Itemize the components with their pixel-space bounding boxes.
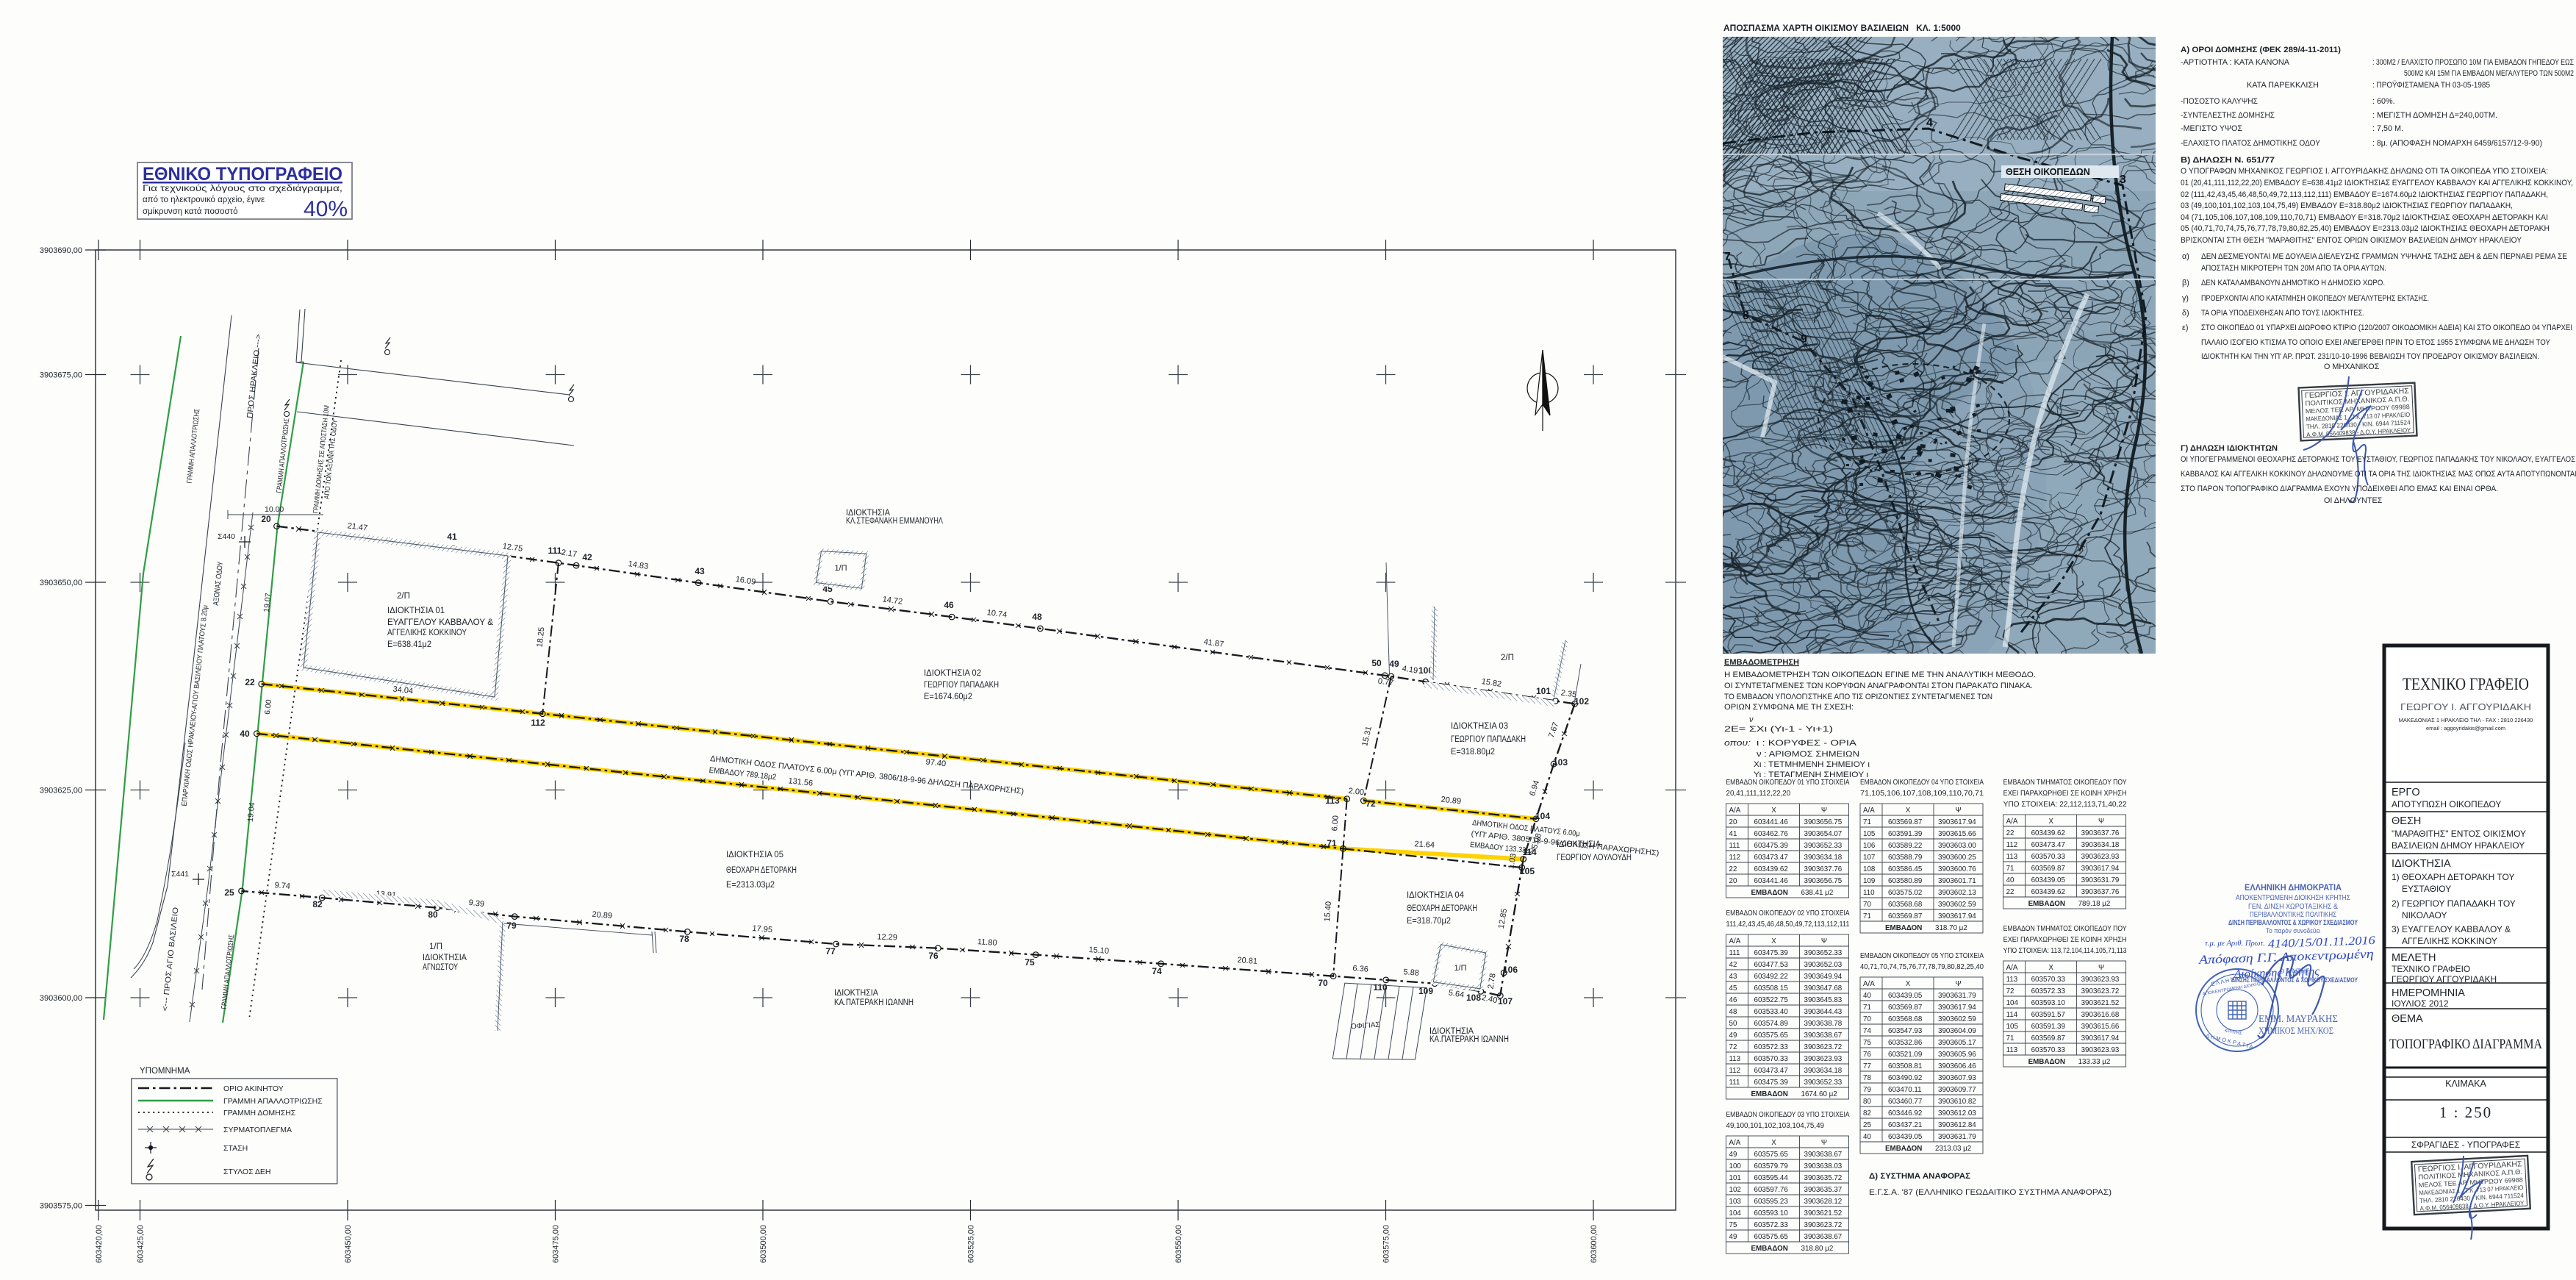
svg-text:ΟΙ ΥΠΟΓΕΓΡΑΜΜΕΝΟΙ ΘΕΟΧΑΡΗΣ ΔΕΤ: ΟΙ ΥΠΟΓΕΓΡΑΜΜΕΝΟΙ ΘΕΟΧΑΡΗΣ ΔΕΤΟΡΑΚΗΣ ΤΟΥ…: [2181, 455, 2575, 464]
svg-text:ΔΕΝ ΚΑΤΑΛΑΜΒΑΝΟΥΝ ΔΗΜΟΤΙΚΟ Η Δ: ΔΕΝ ΚΑΤΑΛΑΜΒΑΝΟΥΝ ΔΗΜΟΤΙΚΟ Η ΔΗΜΟΣΙΟ ΧΩΡ…: [2201, 279, 2385, 287]
svg-text:3903605.96: 3903605.96: [1938, 1051, 1976, 1059]
svg-text:15.10: 15.10: [1088, 945, 1109, 956]
svg-text:603475.39: 603475.39: [1754, 842, 1788, 850]
svg-text:3903638.67: 3903638.67: [1804, 1151, 1843, 1159]
svg-text:ΟΙ ΣΥΝΤΕΤΑΓΜΕΝΕΣ ΤΩΝ ΚΟΡΥΦΩΝ Α: ΟΙ ΣΥΝΤΕΤΑΓΜΕΝΕΣ ΤΩΝ ΚΟΡΥΦΩΝ ΑΝΑΓΡΑΦΟΝΤΑ…: [1724, 682, 2033, 690]
svg-text:Α/Α: Α/Α: [2006, 818, 2018, 826]
svg-text:2.00: 2.00: [1348, 787, 1365, 797]
svg-text:80: 80: [428, 909, 438, 920]
svg-text:3903612.84: 3903612.84: [1938, 1121, 1976, 1129]
svg-text:ΙΔΙΟΚΤΗΣΙΑ 02: ΙΔΙΟΚΤΗΣΙΑ 02: [924, 669, 981, 678]
svg-text:: 60%.: : 60%.: [2372, 97, 2395, 106]
svg-text:3903623.93: 3903623.93: [2081, 853, 2120, 861]
svg-text:6.00: 6.00: [263, 699, 273, 715]
svg-text:ι : ΚΟΡΥΦΕΣ - ΟΡΙΑ: ι : ΚΟΡΥΦΕΣ - ΟΡΙΑ: [1757, 739, 1857, 748]
svg-text:1/Π: 1/Π: [429, 943, 442, 951]
svg-text:603500,00: 603500,00: [759, 1225, 768, 1263]
svg-text:79: 79: [506, 920, 517, 931]
svg-text:77: 77: [1863, 1062, 1871, 1070]
svg-text:3903605.17: 3903605.17: [1938, 1039, 1976, 1047]
svg-text:: 300Μ2 / ΕΛΑΧΙΣΤΟ ΠΡΟΣΩΠΟ 10: : 300Μ2 / ΕΛΑΧΙΣΤΟ ΠΡΟΣΩΠΟ 10Μ ΓΙΑ ΕΜΒΑΔ…: [2372, 58, 2574, 67]
svg-text:42: 42: [582, 552, 592, 562]
svg-text:σμίκρυνση κατά ποσοστό: σμίκρυνση κατά ποσοστό: [143, 207, 237, 216]
svg-text:111: 111: [1729, 1079, 1740, 1087]
svg-text:ΘΕΣΗ ΟΙΚΟΠΕΔΩΝ: ΘΕΣΗ ΟΙΚΟΠΕΔΩΝ: [2006, 167, 2090, 177]
svg-text:ΔΙΝΣΗΣ ΠΕΡΙΒΑΛΛΟΝΤΟΣ & ΧΩΡΙΚΟΥ: ΔΙΝΣΗΣ ΠΕΡΙΒΑΛΛΟΝΤΟΣ & ΧΩΡΙΚΟΥ ΣΧΕΔΙΑΣΜΟ…: [2231, 976, 2358, 984]
svg-text:4: 4: [1926, 117, 1933, 129]
svg-text:25: 25: [1863, 1121, 1871, 1129]
svg-text:49: 49: [1729, 1151, 1737, 1159]
svg-text:71: 71: [1327, 838, 1337, 848]
svg-text:ΕΛΛΗΝΙΚΗ ΔΗΜΟΚΡΑΤΙΑ: ΕΛΛΗΝΙΚΗ ΔΗΜΟΚΡΑΤΙΑ: [2245, 882, 2342, 893]
svg-text:49: 49: [1729, 1031, 1737, 1040]
svg-text:71: 71: [2006, 1034, 2014, 1043]
svg-text:603568.68: 603568.68: [1888, 1015, 1923, 1023]
svg-text:74: 74: [1863, 1027, 1871, 1035]
svg-text:03 (49,100,101,102,103,104,75: 03 (49,100,101,102,103,104,75,49) ΕΜΒΑΔΟ…: [2181, 201, 2513, 210]
svg-text:ΕΧΕΙ ΠΑΡΑΧΩΡΗΘΕΙ ΣΕ ΚΟΙΝΗ ΧΡΗΣ: ΕΧΕΙ ΠΑΡΑΧΩΡΗΘΕΙ ΣΕ ΚΟΙΝΗ ΧΡΗΣΗ: [2003, 936, 2127, 944]
svg-text:45: 45: [1729, 984, 1737, 993]
svg-text:ΚΑΤΑ ΠΑΡΕΚΚΛΙΣΗ: ΚΑΤΑ ΠΑΡΕΚΚΛΙΣΗ: [2247, 81, 2319, 90]
svg-text:ΕΜΒΑΔΟΝ: ΕΜΒΑΔΟΝ: [1751, 889, 1788, 897]
svg-text:3903623.72: 3903623.72: [1804, 1221, 1843, 1229]
svg-text:112: 112: [2006, 841, 2018, 849]
svg-text:ΕΜΒΑΔΟΜΕΤΡΗΣΗ: ΕΜΒΑΔΟΜΕΤΡΗΣΗ: [1724, 658, 1799, 667]
svg-text:46: 46: [944, 600, 954, 610]
svg-text:Ψ: Ψ: [1955, 807, 1961, 815]
svg-text:20.81: 20.81: [1237, 956, 1257, 966]
svg-text:603460.77: 603460.77: [1888, 1098, 1922, 1106]
svg-text:7: 7: [1724, 251, 1731, 263]
svg-text:Ψ: Ψ: [2098, 818, 2104, 826]
svg-text:04 (71,105,106,107,108,109,11: 04 (71,105,106,107,108,109,110,70,71) ΕΜ…: [2181, 213, 2548, 222]
svg-text:Α/Α: Α/Α: [1863, 980, 1875, 988]
svg-text:70: 70: [1863, 1015, 1871, 1023]
svg-text:1/Π: 1/Π: [834, 564, 847, 573]
svg-text:107: 107: [1498, 996, 1513, 1007]
svg-text:15.40: 15.40: [1323, 901, 1333, 922]
svg-text:2313.03 μ2: 2313.03 μ2: [1935, 1145, 1971, 1153]
svg-text:ΠΕΡΙΒΑΛΛΟΝΤΙΚΗΣ ΠΟΛΙΤΙΚΗΣ: ΠΕΡΙΒΑΛΛΟΝΤΙΚΗΣ ΠΟΛΙΤΙΚΗΣ: [2250, 911, 2336, 919]
svg-text:112: 112: [1729, 854, 1741, 862]
svg-text:Χι : ΤΕΤΜΗΜΕΝΗ ΣΗΜΕΙΟΥ ι: Χι : ΤΕΤΜΗΜΕΝΗ ΣΗΜΕΙΟΥ ι: [1754, 760, 1870, 769]
svg-text:603569.87: 603569.87: [1888, 912, 1922, 920]
svg-text:Ε=318.70μ2: Ε=318.70μ2: [1407, 917, 1451, 926]
svg-text:ΙΔΙΟΚΤΗΣΙΑ 04: ΙΔΙΟΚΤΗΣΙΑ 04: [1407, 891, 1465, 900]
svg-text:ΟΡΙΟ ΑΚΙΝΗΤΟΥ: ΟΡΙΟ ΑΚΙΝΗΤΟΥ: [223, 1084, 284, 1093]
svg-text:603569.87: 603569.87: [2031, 865, 2065, 873]
svg-text:ΑΠΟΤΥΠΩΣΗ ΟΙΚΟΠΕΔΟΥ: ΑΠΟΤΥΠΩΣΗ ΟΙΚΟΠΕΔΟΥ: [2392, 799, 2501, 809]
svg-text:Ε=638.41μ2: Ε=638.41μ2: [387, 640, 431, 649]
svg-text:ΙΔΙΟΚΤΗΣΙΑ 01: ΙΔΙΟΚΤΗΣΙΑ 01: [387, 607, 445, 615]
svg-text:113: 113: [2006, 976, 2018, 984]
svg-text:603547.93: 603547.93: [1888, 1027, 1923, 1035]
svg-text:ΕΜΒΑΔΟΝ ΟΙΚΟΠΕΔΟΥ 05 ΥΠΟ ΣΤΟΙΧ: ΕΜΒΑΔΟΝ ΟΙΚΟΠΕΔΟΥ 05 ΥΠΟ ΣΤΟΙΧΕΙΑ: [1860, 952, 1984, 960]
svg-text:75: 75: [1025, 957, 1035, 968]
svg-text:: 8μ. (ΑΠΟΦΑΣΗ ΝΟΜΑΡΧΗ 6459/6: : 8μ. (ΑΠΟΦΑΣΗ ΝΟΜΑΡΧΗ 6459/6157/12-9-90…: [2372, 139, 2542, 148]
svg-text:74: 74: [1152, 966, 1162, 976]
svg-text:3903638.78: 3903638.78: [1804, 1020, 1843, 1028]
svg-text:ΠΑΛΑΙΟ ΙΣΟΓΕΙΟ ΚΤΙΣΜΑ ΤΟ ΟΠΟΙΟ: ΠΑΛΑΙΟ ΙΣΟΓΕΙΟ ΚΤΙΣΜΑ ΤΟ ΟΠΟΙΟ ΕΧΕΙ ΑΝΕΓ…: [2201, 338, 2550, 347]
svg-text:603475.39: 603475.39: [1754, 1079, 1788, 1087]
svg-text:43: 43: [695, 566, 705, 576]
svg-text:46: 46: [1729, 996, 1737, 1004]
svg-text:3903634.18: 3903634.18: [2081, 841, 2120, 849]
svg-text:603595.44: 603595.44: [1754, 1174, 1789, 1182]
svg-text:ΑΓΝΩΣΤΟΥ: ΑΓΝΩΣΤΟΥ: [423, 963, 458, 972]
svg-text:3903635.37: 3903635.37: [1804, 1186, 1843, 1194]
svg-text:638.41 μ2: 638.41 μ2: [1801, 889, 1834, 897]
svg-text:105: 105: [1863, 830, 1876, 838]
svg-text:Ψ: Ψ: [1821, 937, 1827, 945]
svg-text:6.00: 6.00: [1330, 815, 1341, 832]
svg-text:ΕΜΒΑΔΟΝ: ΕΜΒΑΔΟΝ: [1885, 1145, 1922, 1153]
svg-text:Χ: Χ: [1771, 1139, 1776, 1147]
svg-text:603439.05: 603439.05: [1888, 992, 1923, 1000]
svg-text:603591.39: 603591.39: [2031, 1023, 2065, 1031]
svg-text:318.70 μ2: 318.70 μ2: [1935, 924, 1967, 932]
svg-text:Β) ΔΗΛΩΣΗ Ν. 651/77: Β) ΔΗΛΩΣΗ Ν. 651/77: [2181, 156, 2275, 165]
svg-text:3903690,00: 3903690,00: [40, 246, 82, 255]
svg-text:3903623.93: 3903623.93: [2081, 1046, 2120, 1054]
svg-text:3903603.00: 3903603.00: [1938, 842, 1976, 850]
svg-text:603521.09: 603521.09: [1888, 1051, 1922, 1059]
svg-text:Ψ: Ψ: [1821, 807, 1827, 815]
svg-text:3) ΕΥΑΓΓΕΛΟΥ ΚΑΒΒΑΛΟΥ &: 3) ΕΥΑΓΓΕΛΟΥ ΚΑΒΒΑΛΟΥ &: [2392, 924, 2511, 934]
svg-text:Α/Α: Α/Α: [1729, 1139, 1741, 1147]
svg-text:Α/Α: Α/Α: [1729, 937, 1741, 945]
svg-text:113: 113: [1325, 795, 1340, 806]
svg-text:603441.46: 603441.46: [1754, 818, 1789, 826]
svg-text:3903615.66: 3903615.66: [1938, 830, 1976, 838]
svg-text:106: 106: [1863, 842, 1876, 850]
svg-text:71: 71: [1863, 1004, 1871, 1012]
svg-text:603575.65: 603575.65: [1754, 1233, 1789, 1241]
svg-text:114: 114: [2006, 1011, 2018, 1019]
svg-text:603575.65: 603575.65: [1754, 1031, 1789, 1040]
svg-text:3903652.33: 3903652.33: [1804, 842, 1843, 850]
svg-text:603550,00: 603550,00: [1174, 1225, 1183, 1263]
svg-text:5.88: 5.88: [1403, 968, 1419, 978]
svg-text:603508.81: 603508.81: [1888, 1062, 1922, 1070]
svg-text:ΓΡΑΜΜΗ ΔΟΜΗΣΗΣ: ΓΡΑΜΜΗ ΔΟΜΗΣΗΣ: [223, 1109, 296, 1118]
svg-text:603579.79: 603579.79: [1754, 1162, 1788, 1170]
svg-text:111: 111: [1729, 949, 1740, 957]
svg-text:Χ: Χ: [2048, 964, 2053, 972]
svg-text:02 (111,42,43,45,46,48,50,49,: 02 (111,42,43,45,46,48,50,49,72,113,112,…: [2181, 190, 2548, 199]
svg-text:3903634.18: 3903634.18: [1804, 854, 1843, 862]
svg-text:112: 112: [1729, 1067, 1741, 1075]
svg-text:3903621.52: 3903621.52: [1804, 1209, 1843, 1218]
svg-text:Ε=318.80μ2: Ε=318.80μ2: [1451, 748, 1495, 757]
svg-text:ΕΜΒΑΔΟΝ ΟΙΚΟΠΕΔΟΥ 04 ΥΠΟ ΣΤΟΙΧ: ΕΜΒΑΔΟΝ ΟΙΚΟΠΕΔΟΥ 04 ΥΠΟ ΣΤΟΙΧΕΙΑ: [1860, 779, 1984, 787]
svg-text:20: 20: [1729, 818, 1737, 826]
svg-text:ΕΡΓΟ: ΕΡΓΟ: [2392, 787, 2420, 798]
svg-text:108: 108: [1863, 865, 1876, 873]
svg-text:603575.02: 603575.02: [1888, 889, 1922, 897]
svg-text:103: 103: [1729, 1198, 1742, 1206]
svg-text:Χ: Χ: [1906, 807, 1911, 815]
svg-text:Α/Α: Α/Α: [1863, 807, 1875, 815]
svg-text:48: 48: [1729, 1008, 1737, 1016]
svg-text:ΝΙΚΟΛΑΟΥ: ΝΙΚΟΛΑΟΥ: [2402, 910, 2447, 920]
svg-text:Α/Α: Α/Α: [2006, 964, 2018, 972]
svg-text:τ.μ. με Αριθ. Πρωτ.: τ.μ. με Αριθ. Πρωτ.: [2205, 940, 2265, 948]
svg-text:ΣΤΑΣΗ: ΣΤΑΣΗ: [223, 1144, 248, 1153]
svg-text:ε): ε): [2182, 323, 2188, 332]
svg-text:3903600,00: 3903600,00: [40, 994, 82, 1003]
svg-text:3903656.75: 3903656.75: [1804, 818, 1843, 826]
svg-text:3903637.76: 3903637.76: [2081, 829, 2120, 837]
svg-text:ΓΕΩΡΓΙΟΥ ΠΑΠΑΔΑΚΗ: ΓΕΩΡΓΙΟΥ ΠΑΠΑΔΑΚΗ: [1451, 735, 1526, 744]
svg-text:3903652.33: 3903652.33: [1804, 1079, 1843, 1087]
svg-text:2) ΓΕΩΡΓΙΟΥ ΠΑΠΑΔΑΚΗ ΤΟΥ: 2) ΓΕΩΡΓΙΟΥ ΠΑΠΑΔΑΚΗ ΤΟΥ: [2392, 898, 2516, 909]
svg-text:603575,00: 603575,00: [1382, 1225, 1391, 1263]
svg-text:2/Π: 2/Π: [397, 592, 410, 601]
svg-text:ΙΟΥΛΙΟΣ 2012: ΙΟΥΛΙΟΣ 2012: [2392, 998, 2449, 1009]
svg-text:100: 100: [1729, 1162, 1742, 1170]
svg-text:40: 40: [240, 729, 250, 739]
svg-text:-ΕΛΑΧΙΣΤΟ ΠΛΑΤΟΣ ΔΗΜΟΤΙΚΗΣ ΟΔΟ: -ΕΛΑΧΙΣΤΟ ΠΛΑΤΟΣ ΔΗΜΟΤΙΚΗΣ ΟΔΟΥ: [2181, 139, 2320, 148]
svg-text:ΘΕΟΧΑΡΗ ΔΕΤΟΡΑΚΗ: ΘΕΟΧΑΡΗ ΔΕΤΟΡΑΚΗ: [726, 866, 797, 875]
svg-text:108: 108: [1466, 993, 1481, 1003]
svg-text:3903628.12: 3903628.12: [1804, 1198, 1843, 1206]
svg-text:1674.60 μ2: 1674.60 μ2: [1801, 1090, 1837, 1098]
svg-text:3903635.72: 3903635.72: [1804, 1174, 1843, 1182]
svg-text:1) ΘΕΟΧΑΡΗ ΔΕΤΟΡΑΚΗ ΤΟΥ: 1) ΘΕΟΧΑΡΗ ΔΕΤΟΡΑΚΗ ΤΟΥ: [2392, 872, 2514, 882]
svg-text:603575.65: 603575.65: [1754, 1151, 1789, 1159]
svg-text:ΙΔΙΟΚΤΗΣΙΑ: ΙΔΙΟΚΤΗΣΙΑ: [834, 989, 878, 998]
svg-text:603591.39: 603591.39: [1888, 830, 1922, 838]
svg-text:-ΑΡΤΙΟΤΗΤΑ : ΚΑΤΑ ΚΑΝΟΝΑ: -ΑΡΤΙΟΤΗΤΑ : ΚΑΤΑ ΚΑΝΟΝΑ: [2181, 58, 2290, 67]
svg-text:Ε.Γ.Σ.Α. '87 (ΕΛΛΗΝΙΚΟ ΓΕΩΔΑΙ: Ε.Γ.Σ.Α. '87 (ΕΛΛΗΝΙΚΟ ΓΕΩΔΑΙΤΙΚΟ ΣΥΣΤΗΜ…: [1869, 1188, 2112, 1197]
svg-text:603439.05: 603439.05: [2031, 876, 2066, 884]
svg-text:ΕΜΒΑΔΟΝ: ΕΜΒΑΔΟΝ: [2028, 1058, 2065, 1066]
svg-text:3903623.72: 3903623.72: [2081, 987, 2120, 995]
svg-text:603439.62: 603439.62: [1754, 865, 1788, 873]
svg-text:107: 107: [1863, 854, 1875, 862]
svg-text:: 7,50 Μ.: : 7,50 Μ.: [2372, 124, 2403, 133]
svg-text:2Ε= ΣΧι (Υι-1 - Υι+1): 2Ε= ΣΧι (Υι-1 - Υι+1): [1724, 725, 1833, 734]
svg-text:Χ: Χ: [2048, 818, 2053, 826]
svg-text:133.33 μ2: 133.33 μ2: [2078, 1058, 2111, 1066]
svg-text:ΕΜΒΑΔΟΝ: ΕΜΒΑΔΟΝ: [1751, 1090, 1788, 1098]
svg-text:603597.76: 603597.76: [1754, 1186, 1789, 1194]
svg-text:3903654.07: 3903654.07: [1804, 830, 1843, 838]
svg-text:603574.89: 603574.89: [1754, 1020, 1788, 1028]
svg-text:ΓΡΑΜΜΗ ΑΠΑΛΛΟΤΡΙΩΣΗΣ: ΓΡΑΜΜΗ ΑΠΑΛΛΟΤΡΙΩΣΗΣ: [223, 1097, 323, 1106]
svg-text:ΓΕΩΡΓΙΟΥ ΛΟΥΛΟΥΔΗ: ΓΕΩΡΓΙΟΥ ΛΟΥΛΟΥΔΗ: [1557, 854, 1632, 862]
svg-text:Ο ΥΠΟΓΡΑΦΩΝ ΜΗΧΑΝΙΚΟΣ ΓΕΩΡΓΙΟΣ: Ο ΥΠΟΓΡΑΦΩΝ ΜΗΧΑΝΙΚΟΣ ΓΕΩΡΓΙΟΣ Ι. ΑΓΓΟΥΡ…: [2181, 167, 2548, 176]
svg-text:ΑΠΟΚΕΝΤΡΩΜΕΝΗ ΔΙΟΙΚΗΣΗ ΚΡΗΤΗΣ: ΑΠΟΚΕΝΤΡΩΜΕΝΗ ΔΙΟΙΚΗΣΗ ΚΡΗΤΗΣ: [2236, 894, 2350, 902]
svg-text:Γ) ΔΗΛΩΣΗ ΙΔΙΟΚΤΗΤΩΝ: Γ) ΔΗΛΩΣΗ ΙΔΙΟΚΤΗΤΩΝ: [2181, 444, 2278, 453]
svg-text:103: 103: [1553, 757, 1568, 768]
svg-text:ΜΑΚΕΔΟΝΙΑΣ 1 ΗΡΑΚΛΕΙΟ ΤΗΛ -: ΜΑΚΕΔΟΝΙΑΣ 1 ΗΡΑΚΛΕΙΟ ΤΗΛ - FAX : 2810 2…: [2399, 717, 2533, 723]
svg-text:82: 82: [312, 899, 323, 909]
svg-text:ΤΕΧΝΙΚΟ ΓΡΑΦΕΙΟ: ΤΕΧΝΙΚΟ ΓΡΑΦΕΙΟ: [2403, 675, 2529, 693]
svg-text:603570.33: 603570.33: [2031, 1046, 2066, 1054]
svg-text:603570.33: 603570.33: [1754, 1055, 1789, 1063]
svg-text:42: 42: [1729, 961, 1737, 969]
svg-text:22: 22: [2006, 829, 2014, 837]
svg-text:603593.10: 603593.10: [1754, 1209, 1789, 1218]
svg-text:43: 43: [1729, 973, 1737, 981]
svg-text:ΚΑ.ΠΑΤΕΡΑΚΗ ΙΩΑΝΝΗ: ΚΑ.ΠΑΤΕΡΑΚΗ ΙΩΑΝΝΗ: [1429, 1035, 1509, 1044]
svg-text:3903612.03: 3903612.03: [1938, 1109, 1976, 1118]
svg-text:112: 112: [531, 718, 545, 728]
svg-text:603525,00: 603525,00: [967, 1225, 976, 1263]
svg-text:79: 79: [1863, 1086, 1871, 1094]
svg-text:603593.10: 603593.10: [2031, 999, 2066, 1007]
svg-text:101: 101: [1536, 686, 1551, 696]
svg-text:71,105,106,107,108,109,110,70,: 71,105,106,107,108,109,110,70,71: [1860, 790, 1984, 798]
svg-text:500Μ2 ΚΑΙ 15Μ ΓΙΑ ΕΜΒΑΔΟΝ ΜΕΓΑ: 500Μ2 ΚΑΙ 15Μ ΓΙΑ ΕΜΒΑΔΟΝ ΜΕΓΑΛΥΤΕΡΟ ΤΩΝ…: [2404, 69, 2574, 78]
svg-text:ΓΕΩΡΓΙΟΥ ΑΓΓΟΥΡΙΔΑΚΗ: ΓΕΩΡΓΙΟΥ ΑΓΓΟΥΡΙΔΑΚΗ: [2392, 974, 2497, 984]
svg-text:ΠΡΟΕΡΧΟΝΤΑΙ ΑΠΟ ΚΑΤΑΤΜΗΣΗ ΟΙΚΟ: ΠΡΟΕΡΧΟΝΤΑΙ ΑΠΟ ΚΑΤΑΤΜΗΣΗ ΟΙΚΟΠΕΔΟΥ ΜΕΓΑ…: [2201, 294, 2429, 303]
svg-text:3: 3: [2120, 174, 2126, 186]
svg-text:603533.40: 603533.40: [1754, 1008, 1789, 1016]
svg-text:ΚΑΒΒΑΛΟΣ ΚΑΙ ΑΓΓΕΛΙΚΗ ΚΟΚΚΙΝΟΥ: ΚΑΒΒΑΛΟΣ ΚΑΙ ΑΓΓΕΛΙΚΗ ΚΟΚΚΙΝΟΥ ΔΗΛΩΝΟΥΜΕ…: [2181, 470, 2576, 479]
svg-text:102: 102: [1729, 1186, 1741, 1194]
svg-text:ΑΠΟΣΠΑΣΜΑ ΧΑΡΤΗ ΟΙΚΙΣΜΟΥ ΒΑΣΙΛ: ΑΠΟΣΠΑΣΜΑ ΧΑΡΤΗ ΟΙΚΙΣΜΟΥ ΒΑΣΙΛΕΙΩΝ ΚΛ. 1…: [1723, 23, 1961, 33]
svg-text:49: 49: [1389, 659, 1399, 669]
svg-text:77: 77: [825, 946, 836, 957]
svg-text:ΙΔΙΟΚΤΗΣΙΑ: ΙΔΙΟΚΤΗΣΙΑ: [423, 954, 467, 962]
svg-text:603572.33: 603572.33: [1754, 1043, 1789, 1051]
svg-text:ΕΧΕΙ ΠΑΡΑΧΩΡΗΘΕΙ ΣΕ ΚΟΙΝΗ ΧΡΗΣ: ΕΧΕΙ ΠΑΡΑΧΩΡΗΘΕΙ ΣΕ ΚΟΙΝΗ ΧΡΗΣΗ: [2003, 790, 2127, 798]
svg-text:603492.22: 603492.22: [1754, 973, 1788, 981]
svg-text:21.64: 21.64: [1414, 840, 1435, 850]
svg-text:76: 76: [928, 951, 939, 961]
svg-text:603591.57: 603591.57: [2031, 1011, 2065, 1019]
svg-text:3903621.52: 3903621.52: [2081, 999, 2120, 1007]
svg-text:05 (40,71,70,74,75,76,77,78,7: 05 (40,71,70,74,75,76,77,78,79,80,82,25,…: [2181, 224, 2550, 233]
svg-text:75: 75: [1863, 1039, 1871, 1047]
svg-text:ν : ΑΡΙΘΜΟΣ ΣΗΜΕΙΩΝ: ν : ΑΡΙΘΜΟΣ ΣΗΜΕΙΩΝ: [1757, 750, 1859, 759]
svg-text:3903617.94: 3903617.94: [1938, 818, 1976, 826]
svg-text:102: 102: [1574, 696, 1589, 707]
svg-text:104: 104: [2006, 999, 2019, 1007]
svg-text:3903623.93: 3903623.93: [2081, 976, 2120, 984]
svg-text:603589.22: 603589.22: [1888, 842, 1922, 850]
svg-text:789.18 μ2: 789.18 μ2: [2078, 900, 2111, 908]
svg-text:22: 22: [2006, 888, 2014, 896]
svg-text:603450,00: 603450,00: [344, 1225, 353, 1263]
svg-text:Η ΕΜΒΑΔΟΜΕΤΡΗΣΗ ΤΩΝ ΟΙΚΟΠΕΔΩΝ: Η ΕΜΒΑΔΟΜΕΤΡΗΣΗ ΤΩΝ ΟΙΚΟΠΕΔΩΝ ΕΓΙΝΕ ΜΕ Τ…: [1724, 671, 2036, 679]
svg-text:3903607.93: 3903607.93: [1938, 1074, 1976, 1082]
svg-text:3903606.46: 3903606.46: [1938, 1062, 1976, 1070]
svg-text:ΚΛΙΜΑΚΑ: ΚΛΙΜΑΚΑ: [2445, 1079, 2486, 1089]
svg-text:α): α): [2182, 252, 2189, 261]
svg-text:3903602.59: 3903602.59: [1938, 901, 1976, 909]
svg-text:41: 41: [447, 532, 457, 542]
svg-text:603470.11: 603470.11: [1888, 1086, 1922, 1094]
svg-text:ΕΜΒΑΔΟΝ ΟΙΚΟΠΕΔΟΥ 02 ΥΠΟ ΣΤΟΙΧ: ΕΜΒΑΔΟΝ ΟΙΚΟΠΕΔΟΥ 02 ΥΠΟ ΣΤΟΙΧΕΙΑ: [1726, 909, 1850, 918]
svg-text:3903617.94: 3903617.94: [2081, 1034, 2120, 1043]
svg-text:3903649.94: 3903649.94: [1804, 973, 1843, 981]
svg-text:ΤΕΧΝΙΚΟ ΓΡΑΦΕΙΟ: ΤΕΧΝΙΚΟ ΓΡΑΦΕΙΟ: [2392, 964, 2470, 974]
svg-text:1 : 250: 1 : 250: [2439, 1104, 2492, 1121]
svg-text:603569.87: 603569.87: [1888, 818, 1922, 826]
svg-text:ΣΤΟ ΟΙΚΟΠΕΔΟ 01 ΥΠΑΡΧΕΙ ΔΙΩΡΟΦ: ΣΤΟ ΟΙΚΟΠΕΔΟ 01 ΥΠΑΡΧΕΙ ΔΙΩΡΟΦΟ ΚΤΙΡΙΟ (…: [2201, 323, 2572, 332]
svg-text:ΘΕΜΑ: ΘΕΜΑ: [2392, 1013, 2423, 1025]
svg-text:72: 72: [2006, 987, 2014, 995]
svg-text:ΥΠΟ ΣΤΟΙΧΕΙΑ: 22,112,113,71,40: ΥΠΟ ΣΤΟΙΧΕΙΑ: 22,112,113,71,40,22: [2003, 801, 2127, 809]
svg-text:603420,00: 603420,00: [95, 1225, 104, 1263]
svg-text:Ε=1674.60μ2: Ε=1674.60μ2: [924, 693, 972, 701]
svg-text:318.80 μ2: 318.80 μ2: [1801, 1245, 1834, 1253]
svg-text:2/Π: 2/Π: [1501, 654, 1514, 662]
svg-text:ΕΥΑΓΓΕΛΟΥ ΚΑΒΒΑΛΟΥ &: ΕΥΑΓΓΕΛΟΥ ΚΑΒΒΑΛΟΥ &: [387, 618, 493, 627]
svg-text:76: 76: [1863, 1051, 1871, 1059]
svg-text:"ΜΑΡΑΘΙΤΗΣ" ΕΝΤΟΣ ΟΙΚΙΣΜΟΥ: "ΜΑΡΑΘΙΤΗΣ" ΕΝΤΟΣ ΟΙΚΙΣΜΟΥ: [2392, 829, 2526, 839]
svg-text:-ΜΕΓΙΣΤΟ ΥΨΟΣ: -ΜΕΓΙΣΤΟ ΥΨΟΣ: [2181, 124, 2242, 133]
svg-text:3903631.79: 3903631.79: [1938, 992, 1976, 1000]
svg-text:80: 80: [1863, 1098, 1871, 1106]
svg-text:ΕΜΒΑΔΟΝ: ΕΜΒΑΔΟΝ: [1885, 924, 1922, 932]
svg-text:Το παρόν συνοδεύει: Το παρόν συνοδεύει: [2266, 927, 2320, 934]
svg-text:603477.53: 603477.53: [1754, 961, 1789, 969]
svg-text:3903601.71: 3903601.71: [1938, 877, 1976, 885]
svg-text:603475.39: 603475.39: [1754, 949, 1788, 957]
svg-text:603437.21: 603437.21: [1888, 1121, 1922, 1129]
svg-text:ΑΠΟΣΤΑΣΗ ΜΙΚΡΟΤΕΡΗ ΤΩΝ 20Μ ΑΠΟ: ΑΠΟΣΤΑΣΗ ΜΙΚΡΟΤΕΡΗ ΤΩΝ 20Μ ΑΠΟ ΤΑ ΟΡΙΑ Α…: [2201, 264, 2386, 273]
svg-text:3903623.93: 3903623.93: [1804, 1055, 1843, 1063]
svg-text:: ΠΡΟΫΦΙΣΤΑΜΕΝΑ ΤΗ 03-05-1985: : ΠΡΟΫΦΙΣΤΑΜΕΝΑ ΤΗ 03-05-1985: [2372, 81, 2490, 90]
svg-text:603490.92: 603490.92: [1888, 1074, 1922, 1082]
svg-text:ΕΜΜ. ΜΑΥΡΑΚΗΣ: ΕΜΜ. ΜΑΥΡΑΚΗΣ: [2259, 1014, 2338, 1025]
svg-text:από το ηλεκτρονικό αρχείο, έγι: από το ηλεκτρονικό αρχείο, έγινε: [143, 196, 265, 204]
svg-text:603572.33: 603572.33: [2031, 987, 2066, 995]
svg-text:603446.92: 603446.92: [1888, 1109, 1922, 1118]
svg-text:ΔΕΝ ΔΕΣΜΕΥΟΝΤΑΙ ΜΕ ΔΟΥΛΕΙΑ ΔΙΕ: ΔΕΝ ΔΕΣΜΕΥΟΝΤΑΙ ΜΕ ΔΟΥΛΕΙΑ ΔΙΕΛΕΥΣΗΣ ΓΡΑ…: [2201, 252, 2567, 261]
svg-text:ΕΜΒΑΔΟΝ ΟΙΚΟΠΕΔΟΥ 01 ΥΠΟ ΣΤΟΙΧ: ΕΜΒΑΔΟΝ ΟΙΚΟΠΕΔΟΥ 01 ΥΠΟ ΣΤΟΙΧΕΙΑ: [1726, 779, 1850, 787]
svg-text:41: 41: [1729, 830, 1737, 838]
svg-text:Χ: Χ: [1771, 807, 1776, 815]
svg-text:3903637.76: 3903637.76: [2081, 888, 2120, 896]
svg-text:12.29: 12.29: [877, 932, 897, 942]
svg-text:603522.75: 603522.75: [1754, 996, 1789, 1004]
svg-text:3903637.76: 3903637.76: [1804, 865, 1843, 873]
svg-text:ΓΕΝ. ΔΙΝΣΗ ΧΩΡΟΤΑΞΙΚΗΣ &: ΓΕΝ. ΔΙΝΣΗ ΧΩΡΟΤΑΞΙΚΗΣ &: [2248, 903, 2338, 911]
svg-text:ΙΔΙΟΚΤΗΣΙΑ 03: ΙΔΙΟΚΤΗΣΙΑ 03: [1451, 722, 1508, 731]
svg-text:603462.76: 603462.76: [1754, 830, 1789, 838]
svg-text:ΗΜΕΡΟΜΗΝΙΑ: ΗΜΕΡΟΜΗΝΙΑ: [2392, 987, 2465, 999]
svg-text:72: 72: [1366, 798, 1376, 809]
svg-text:Ε=2313.03μ2: Ε=2313.03μ2: [726, 881, 775, 890]
svg-text:9: 9: [1801, 333, 1807, 346]
svg-text:1/Π: 1/Π: [1454, 964, 1466, 973]
svg-text:Ψ: Ψ: [1955, 980, 1961, 988]
svg-text:111,42,43,45,46,48,50,49,72,11: 111,42,43,45,46,48,50,49,72,113,112,111: [1726, 920, 1850, 929]
svg-text:Ψ: Ψ: [1821, 1139, 1827, 1147]
svg-text:ΕΜΒΑΔΟΝ ΤΜΗΜΑΤΟΣ ΟΙΚΟΠΕΔΟΥ ΠΟΥ: ΕΜΒΑΔΟΝ ΤΜΗΜΑΤΟΣ ΟΙΚΟΠΕΔΟΥ ΠΟΥ: [2003, 925, 2127, 933]
svg-text:20: 20: [261, 514, 271, 524]
svg-text:01 (20,41,111,112,22,20) ΕΜΒ: 01 (20,41,111,112,22,20) ΕΜΒΑΔΟΥ Ε=638.4…: [2181, 179, 2573, 187]
svg-text:β): β): [2182, 279, 2189, 287]
svg-text:ΤΟ ΕΜΒΑΔΟΝ ΥΠΟΛΟΓΙΣΤΗΚΕ ΑΠΟ ΤΙ: ΤΟ ΕΜΒΑΔΟΝ ΥΠΟΛΟΓΙΣΤΗΚΕ ΑΠΟ ΤΙΣ ΟΡΙΖΟΝΤΙ…: [1724, 693, 1992, 701]
svg-text:3903631.79: 3903631.79: [1938, 1133, 1976, 1141]
svg-text:3903656.75: 3903656.75: [1804, 877, 1843, 885]
svg-text:Σ441: Σ441: [171, 870, 189, 879]
svg-text:3903638.67: 3903638.67: [1804, 1031, 1843, 1040]
svg-text:ΑΓΓΕΛΙΚΗΣ ΚΟΚΚΙΝΟΥ: ΑΓΓΕΛΙΚΗΣ ΚΟΚΚΙΝΟΥ: [2402, 936, 2497, 946]
svg-text:48: 48: [1032, 612, 1042, 622]
svg-text:78: 78: [679, 934, 689, 944]
svg-text:Ψ: Ψ: [2098, 964, 2104, 972]
svg-text:603473.47: 603473.47: [1754, 854, 1788, 862]
svg-text:3903617.94: 3903617.94: [1938, 1004, 1976, 1012]
